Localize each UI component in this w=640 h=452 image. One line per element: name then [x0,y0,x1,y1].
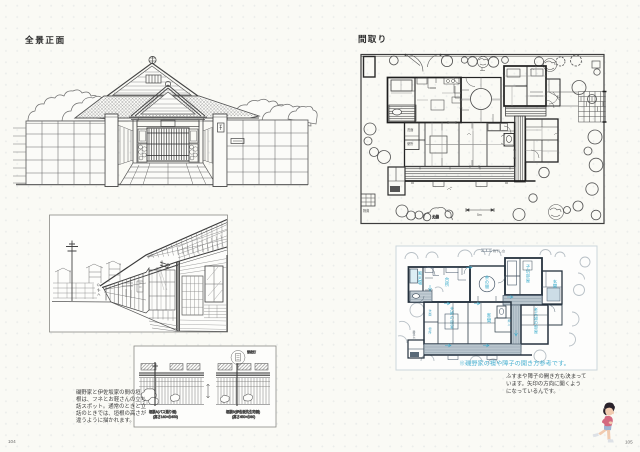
svg-text:物置: 物置 [363,208,369,213]
svg-text:玄関: 玄関 [553,278,557,290]
svg-text:夫婦の寝室: 夫婦の寝室 [450,305,454,329]
svg-text:※磯野家の襖や障子の開き方参考です。: ※磯野家の襖や障子の開き方参考です。 [459,360,570,368]
svg-text:話スポット。通常のときと立: 話スポット。通常のときと立 [76,402,147,410]
svg-text:物干し台: 物干し台 [493,248,505,253]
svg-text:(高さ140×巾450): (高さ140×巾450) [153,414,178,419]
svg-text:間取り: 間取り [358,34,387,44]
svg-text:客間: 客間 [487,312,492,324]
svg-text:洗面: 洗面 [407,127,413,132]
svg-text:ふすまや障子の開き方も決まって: ふすまや障子の開き方も決まって [506,372,586,380]
svg-text:違うように描かれます。: 違うように描かれます。 [76,416,135,424]
svg-text:5m: 5m [477,213,482,217]
svg-text:洗面: 洗面 [428,308,431,316]
svg-text:話のときでは、垣根の高さが: 話のときでは、垣根の高さが [76,409,147,417]
svg-text:根は、フネとお軽さんの立ち: 根は、フネとお軽さんの立ち [76,395,146,403]
svg-text:常夜灯: 常夜灯 [247,349,256,354]
svg-text:老夫婦の部屋: 老夫婦の部屋 [534,307,538,334]
svg-text:(高さ450×巾90): (高さ450×巾90) [232,414,255,419]
svg-text:え儀: え儀 [432,214,439,219]
svg-text:風呂場: 風呂場 [418,271,423,287]
svg-text:押入: 押入 [507,318,510,326]
svg-text:全景正面: 全景正面 [24,34,66,45]
svg-text:104: 104 [8,439,16,444]
svg-text:台所: 台所 [445,276,450,288]
svg-text:勝手口: 勝手口 [413,330,416,340]
svg-text:になっているんです。: になっているんです。 [506,388,559,395]
svg-text:います。矢印の方向に開くよう: います。矢印の方向に開くよう [506,380,581,388]
svg-text:垣根B(伊佐坂先生宅側): 垣根B(伊佐坂先生宅側) [226,409,260,414]
svg-text:磯野家と伊佐坂家の間の垣: 磯野家と伊佐坂家の間の垣 [76,388,141,396]
svg-text:垣根A(バス通り側): 垣根A(バス通り側) [149,409,176,414]
svg-text:子供部屋: 子供部屋 [526,263,530,284]
svg-text:便所: 便所 [428,326,431,334]
svg-text:便所: 便所 [407,141,414,146]
svg-text:105: 105 [625,440,633,445]
